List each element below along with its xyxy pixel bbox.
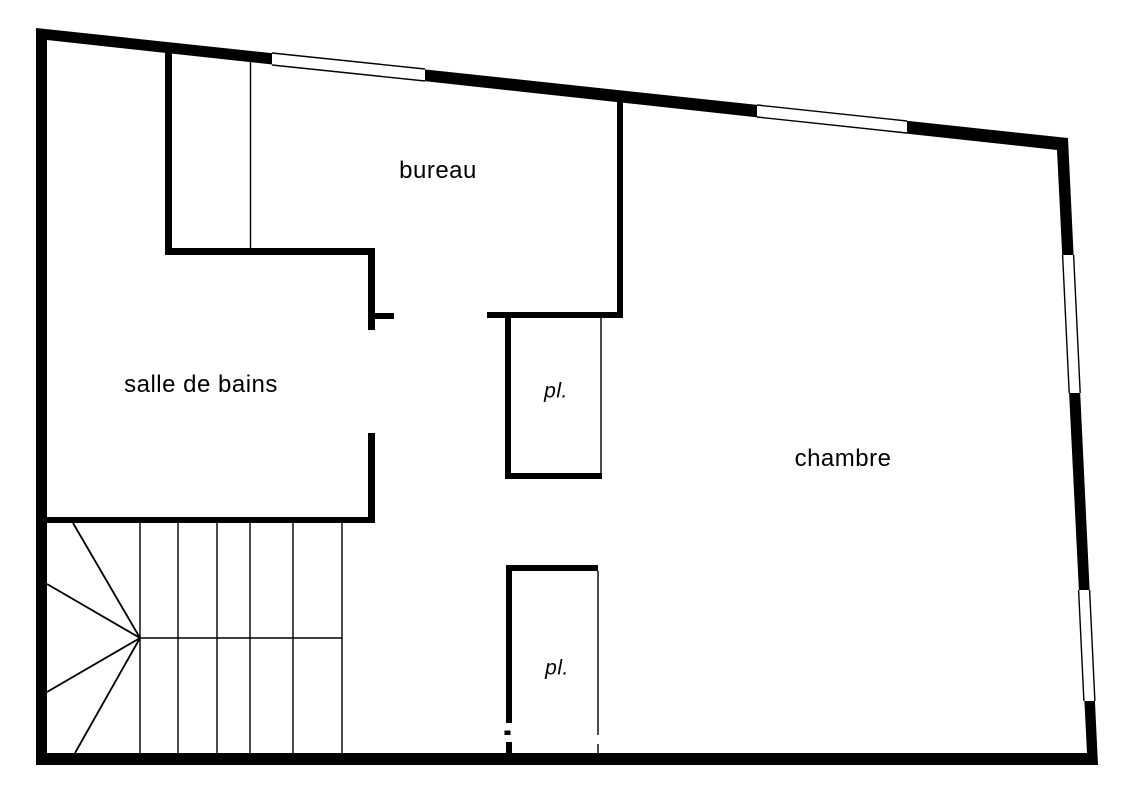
closet-1-top-wall [487,312,623,318]
stair-winder-line-1 [73,523,140,638]
closet-1-bottom-wall [505,473,602,479]
closet-2-top-wall [506,565,598,571]
room-label-bureau: bureau [399,159,477,183]
room-label-chambre: chambre [795,447,892,471]
stair-winder-line-4 [75,638,140,753]
stair-top-wall [47,517,375,523]
bathroom-door-jamb [375,313,394,319]
bathroom-right-wall-upper [368,248,375,330]
stair-winder-line-3 [47,638,140,692]
bureau-right-wall [617,96,623,318]
floor-plan: bureau salle de bains chambre pl. pl. [0,0,1131,800]
bathroom-top-wall [165,248,375,255]
bathroom-right-wall-lower [368,433,375,523]
closet-1-left-wall [505,318,511,479]
stair-winder-line-2 [47,584,140,638]
room-label-salle-de-bains: salle de bains [124,373,278,397]
room-label-placard-1: pl. [544,381,568,402]
room-label-placard-2: pl. [545,658,569,679]
niche-left-wall [165,46,172,255]
wall-notch-artifact-bar [505,731,511,736]
